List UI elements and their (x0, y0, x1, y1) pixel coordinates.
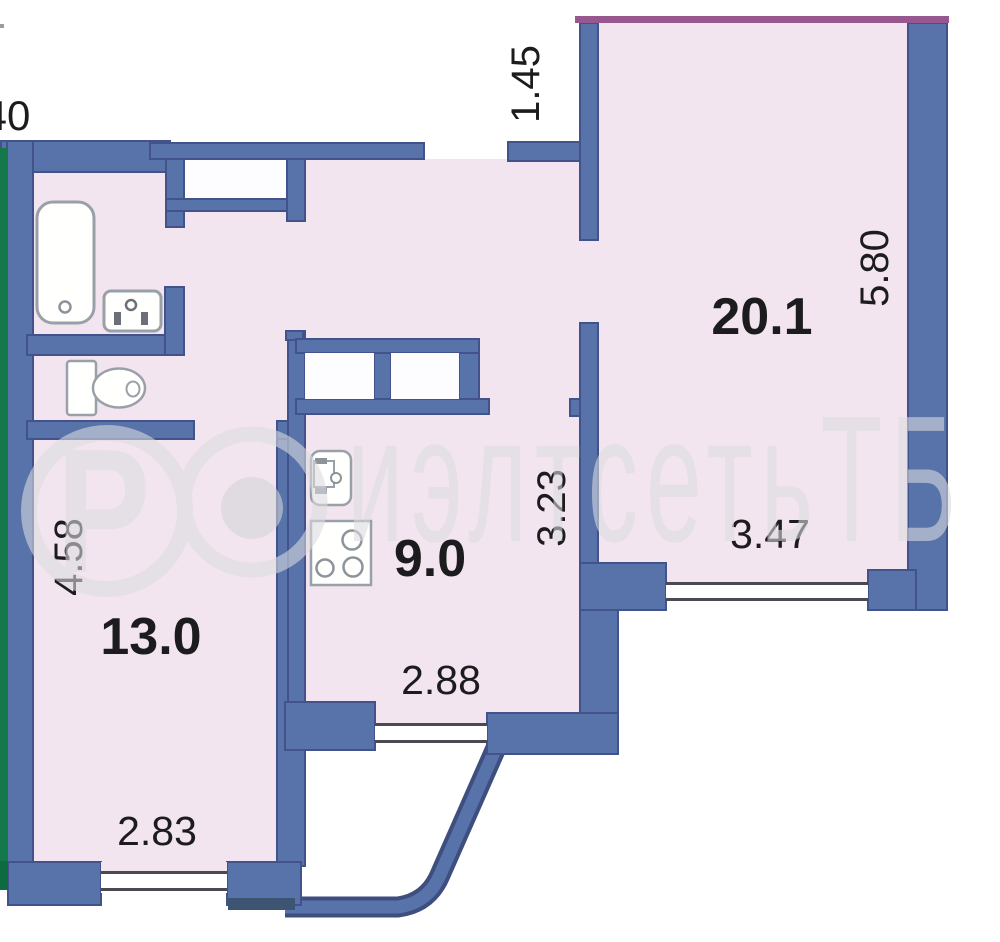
svg-text:5.80: 5.80 (853, 229, 897, 307)
svg-text:иэлтсетьТБ: иэлтсетьТБ (347, 378, 964, 579)
svg-text:20.1: 20.1 (711, 288, 812, 346)
svg-text:1.45: 1.45 (504, 45, 548, 123)
svg-text:2.83: 2.83 (117, 808, 197, 854)
svg-text:40: 40 (0, 92, 30, 139)
svg-text:13.0: 13.0 (100, 608, 201, 666)
svg-text:Р: Р (56, 412, 150, 610)
svg-text:2.88: 2.88 (401, 657, 481, 703)
